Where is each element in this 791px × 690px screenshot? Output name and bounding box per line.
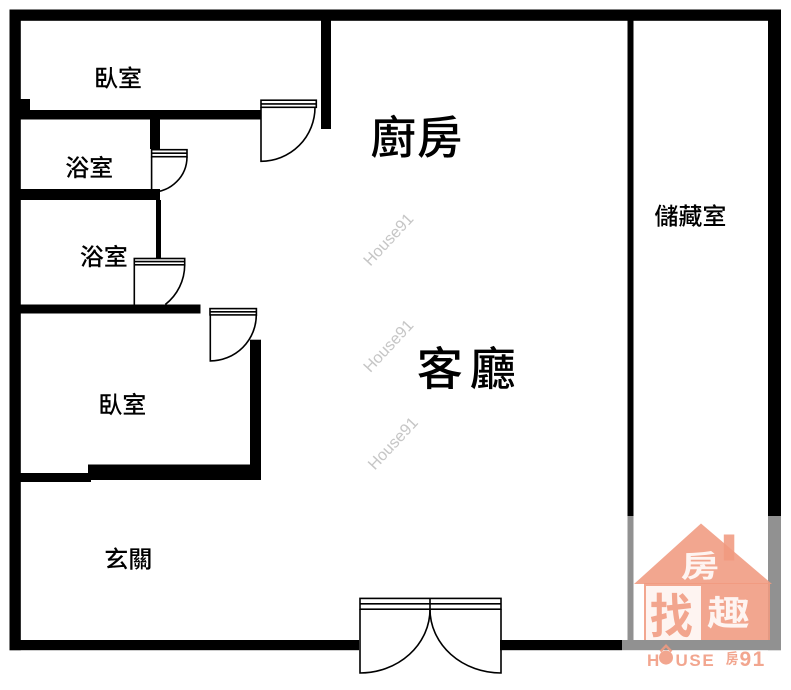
svg-text:H: H [647, 651, 659, 670]
svg-text:USE: USE [676, 651, 716, 670]
svg-text:91: 91 [740, 648, 766, 671]
